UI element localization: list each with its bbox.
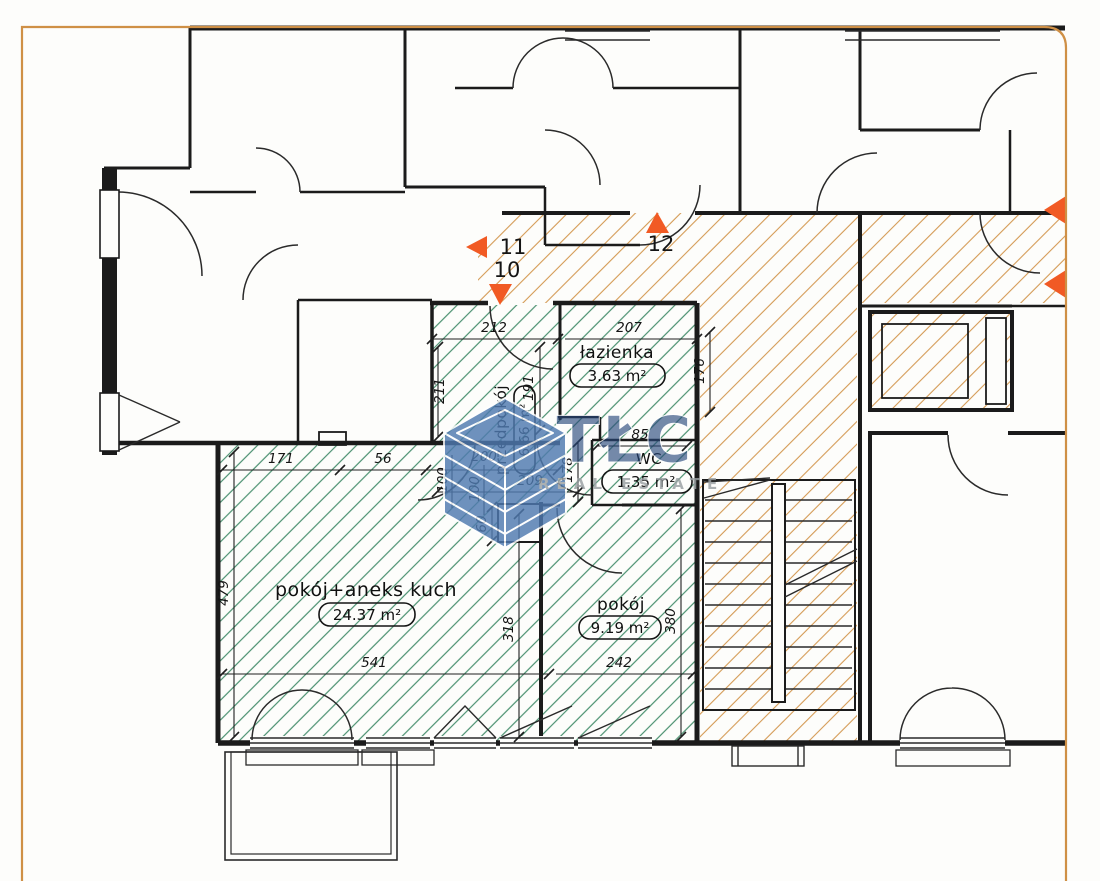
stair-stringer bbox=[772, 484, 785, 702]
room-label-small: pokój bbox=[597, 595, 645, 615]
dim-380: 380 bbox=[663, 608, 679, 634]
room-area-bathroom: 3.63 m² bbox=[588, 367, 647, 385]
watermark-subtitle: REAL ESTATE bbox=[538, 475, 724, 493]
floor-plan-svg: 212 207 211 191 176 85 209 178 100 100 1… bbox=[0, 0, 1100, 881]
dim-242: 242 bbox=[606, 655, 632, 671]
floor-plan-page: 212 207 211 191 176 85 209 178 100 100 1… bbox=[0, 0, 1100, 881]
dim-541: 541 bbox=[361, 655, 387, 671]
room-label-bathroom: łazienka bbox=[580, 343, 654, 363]
dim-207: 207 bbox=[616, 320, 642, 336]
balcony bbox=[225, 752, 397, 860]
room-area-small: 9.19 m² bbox=[591, 619, 650, 637]
dim-318: 318 bbox=[501, 616, 517, 642]
dim-212: 212 bbox=[481, 320, 507, 336]
room-area-main: 24.37 m² bbox=[333, 606, 401, 624]
marker-10-label: 10 bbox=[494, 258, 521, 282]
marker-12-label: 12 bbox=[648, 232, 675, 256]
room-label-main: pokój+aneks kuch bbox=[275, 579, 457, 601]
watermark-brand: TŁC bbox=[556, 404, 694, 478]
marker-11-triangle-icon bbox=[466, 236, 487, 258]
marker-11-label: 11 bbox=[500, 235, 527, 259]
dim-211: 211 bbox=[432, 378, 448, 404]
dim-176: 176 bbox=[692, 358, 708, 384]
dim-56: 56 bbox=[374, 451, 391, 467]
dim-171: 171 bbox=[268, 451, 294, 467]
dim-479: 479 bbox=[216, 580, 232, 606]
